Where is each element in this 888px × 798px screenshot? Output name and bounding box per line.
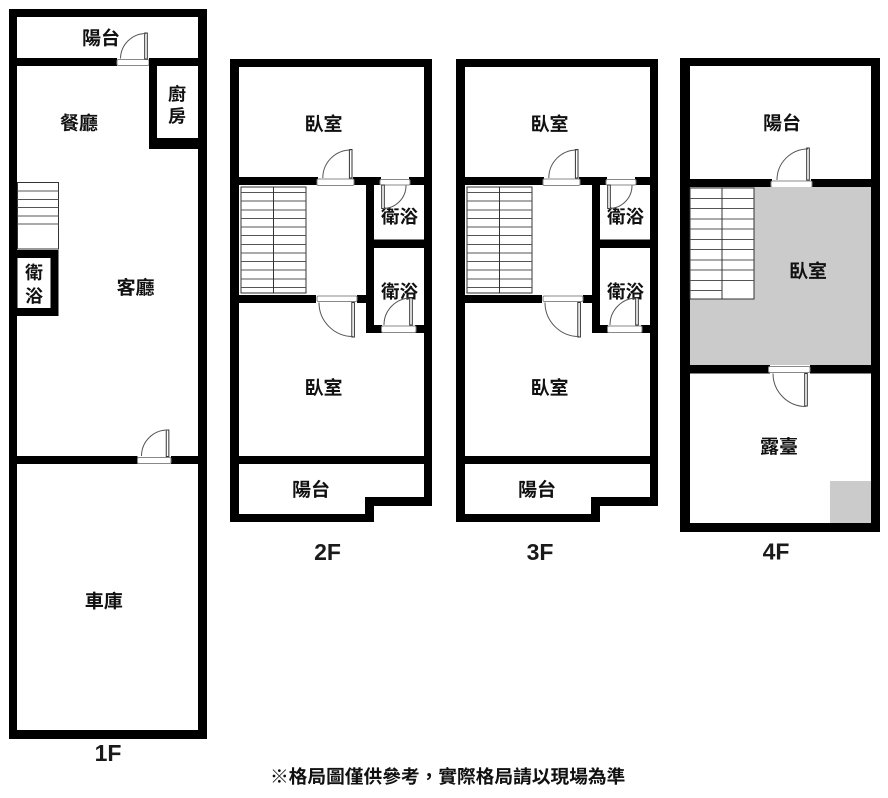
svg-text:4F: 4F xyxy=(763,539,790,565)
svg-text:1F: 1F xyxy=(95,740,122,766)
svg-text:3F: 3F xyxy=(527,539,554,565)
svg-text:2F: 2F xyxy=(314,539,341,565)
